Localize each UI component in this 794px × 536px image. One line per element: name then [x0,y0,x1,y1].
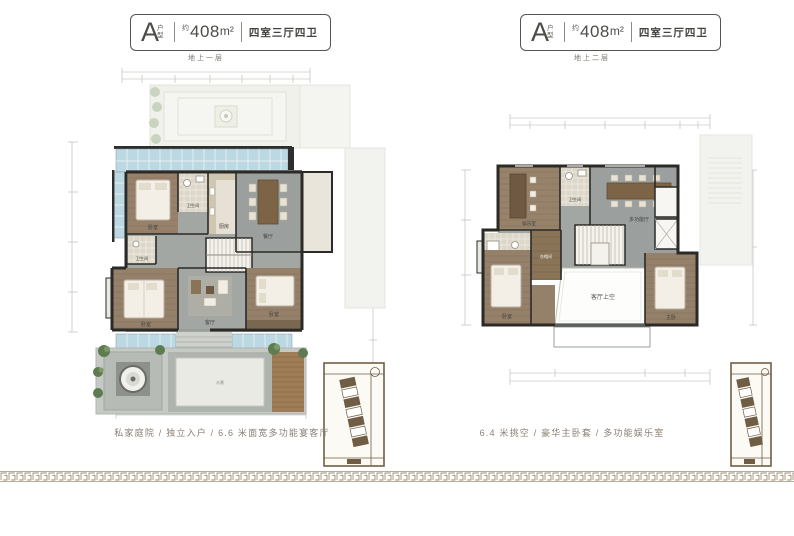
plan2-void-label: 客厅上空 [591,293,615,301]
plan2-multi-hall-label: 多功能厅 [629,216,649,223]
area-value: 408 [190,22,220,42]
area-unit: m² [610,24,624,38]
plan2-balcony-outline [554,327,650,347]
plan2-caption: 6.4 米挑空 / 豪华主卧套 / 多功能娱乐室 [422,426,722,439]
plan1-area: 约 408 m² [182,22,234,42]
plan1-water-feature-label: 水景 [216,379,224,385]
badge-divider [564,22,565,42]
plan2-lounge: 娱乐室 [498,166,560,230]
plan2-cloak: 衣帽间 [531,230,561,280]
plan1-bedroom-c-label: 卧室 [269,311,279,318]
plan1-living-label: 客厅 [205,319,215,326]
badge-divider [241,22,242,42]
plan2-floor-label: 地上二层 [512,53,672,63]
badge-divider [631,22,632,42]
plan1-main-floor: 卧室 卫生间 厨房 [106,170,332,332]
area-unit: m² [220,24,234,38]
plan1-bedroom-a: 卧室 [128,172,178,234]
plan1-dining-label: 餐厅 [263,233,273,240]
plan1-kitchen-label: 厨房 [219,223,229,230]
plan2-floorplan-drawing: 娱乐室 卫生间 多功能厅 [455,75,790,405]
plan2-cloak-label: 衣帽间 [540,253,553,260]
plan2-bath-1-label: 卫生间 [569,196,582,203]
plan1-kitchen: 厨房 [208,172,236,234]
plan2-ghost-corridor [700,135,752,265]
plan1-bedroom-c: 卧室 [246,268,302,330]
area-approx: 约 [182,23,189,33]
plan2-type-suffix: 户型 [547,25,557,39]
plan1-keymap-icon [323,362,385,467]
plan2-master-label: 主卧 [666,314,676,321]
plan2-master: 主卧 [645,253,697,325]
plan1-type-suffix: 户型 [157,25,167,39]
plan1-courtyard: 水景 [93,332,308,414]
plan1-spec-badge: A 户型 约 408 m² 四室三厅四卫 [130,14,331,51]
plan2-room-count: 四室三厅四卫 [639,25,708,40]
plan2-bedroom-label: 卧室 [502,313,512,320]
plan1-bath-2-label: 卫生间 [136,255,149,262]
plan2-lounge-label: 娱乐室 [522,220,536,227]
area-approx: 约 [572,23,579,33]
badge-divider [174,22,175,42]
plan1-caption: 私家庭院 / 独立入户 / 6.6 米面宽多功能宴客厅 [72,426,372,439]
plan1-bath-2: 卫生间 [128,236,156,264]
plan1-bedroom-a-label: 卧室 [148,224,158,231]
plan2-area: 约 408 m² [572,22,624,42]
plan1-bedroom-b: 卧室 [106,268,178,330]
floorplan-sheet: A 户型 约 408 m² 四室三厅四卫 地上一层 A 户型 约 408 m² … [0,0,794,536]
plan2-keymap-icon [730,362,772,467]
plan1-stairs [206,238,252,272]
plan1-room-count: 四室三厅四卫 [249,25,318,40]
plan2-void: 客厅上空 [555,268,645,325]
greek-key-border-icon [0,471,794,482]
plan1-bedroom-b-label: 卧室 [141,321,151,328]
plan2-main-floor: 娱乐室 卫生间 多功能厅 [477,166,697,347]
plan1-bath-1-label: 卫生间 [187,202,200,209]
area-value: 408 [580,22,610,42]
plan2-bath-1: 卫生间 [560,166,590,206]
plan1-bath-1: 卫生间 [178,172,208,212]
plan2-spec-badge: A 户型 约 408 m² 四室三厅四卫 [520,14,721,51]
plan2-stairs [575,225,625,265]
